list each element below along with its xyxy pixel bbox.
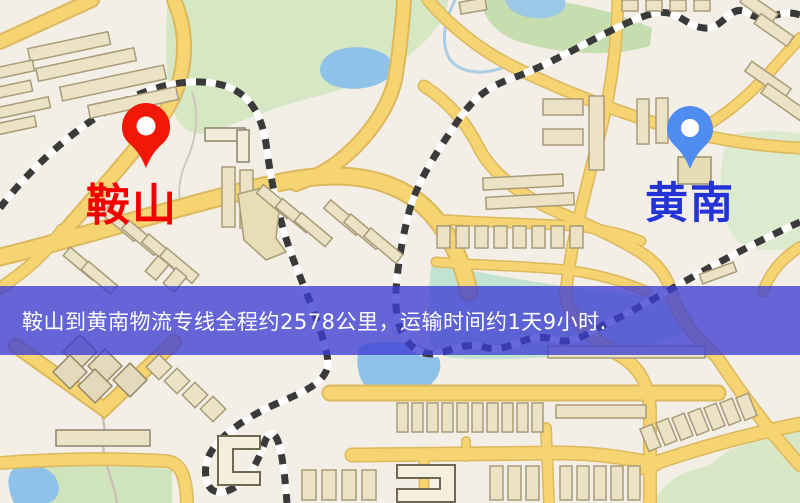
destination-label: 黄南 bbox=[645, 179, 735, 229]
map-canvas: 鞍山 黄南 bbox=[0, 0, 800, 503]
route-info-text: 鞍山到黄南物流专线全程约2578公里，运输时间约1天9小时. bbox=[22, 306, 607, 336]
origin-label: 鞍山 bbox=[86, 180, 178, 231]
map: 鞍山 黄南 鞍山到黄南物流专线全程约2578公里，运输时间约1天9小时. bbox=[0, 0, 800, 503]
route-info-banner: 鞍山到黄南物流专线全程约2578公里，运输时间约1天9小时. bbox=[0, 286, 800, 355]
